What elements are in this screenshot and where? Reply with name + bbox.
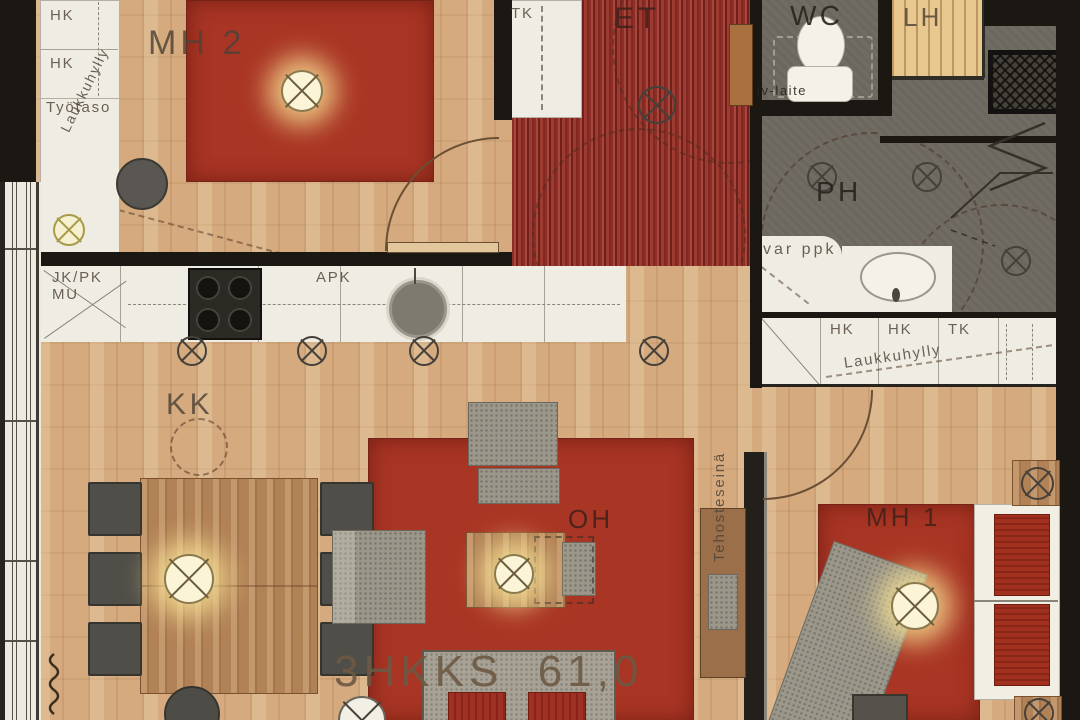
closet-label-tk: TK [948, 322, 971, 337]
dining-chair [320, 482, 374, 536]
window-mullion [5, 420, 36, 422]
wall-kitchen-north [18, 252, 512, 266]
counter-divider [120, 266, 121, 342]
ceiling-light-icon [53, 214, 85, 246]
floor-plan: MH 2 ET WC LH PH KK OH MH 1 TK HK HK Lau… [0, 0, 1080, 720]
window-inner-edge [36, 182, 39, 720]
bedroom-chair [852, 694, 908, 720]
ottoman [468, 402, 558, 466]
ceiling-light-icon [891, 582, 939, 630]
window-mullion [5, 640, 36, 642]
dining-chair [88, 622, 142, 676]
room-label-wc: WC [790, 2, 843, 30]
duvet [994, 514, 1050, 596]
radiator-icon [44, 652, 64, 720]
closet-dashed-mark [1032, 324, 1034, 380]
room-label-mh2: MH 2 [148, 26, 246, 60]
closet-label-hk: HK [50, 8, 74, 23]
window-mullion [5, 560, 36, 562]
dining-chair [88, 482, 142, 536]
wall-closet-south-line [762, 384, 1058, 387]
sofa-cushion [528, 692, 586, 720]
closet-label-hk: HK [888, 322, 912, 337]
ceiling-light-icon [912, 162, 942, 192]
closet-label-hk: HK [50, 56, 74, 71]
dishwasher-label: APK [316, 270, 351, 285]
bed-center-line [974, 600, 1058, 602]
bathroom-faucet [892, 288, 900, 302]
ceiling-light-icon [639, 336, 669, 366]
room-label-kk: KK [166, 390, 213, 420]
sideboard-object [708, 574, 738, 630]
sauna-bench-edge [892, 76, 984, 80]
wall-bathroom-west [750, 118, 762, 318]
furniture-dashed-outline [534, 536, 594, 604]
kitchen-sink-faucet [414, 268, 416, 284]
ottoman [478, 468, 560, 504]
room-label-et: ET [614, 4, 660, 34]
wall-corner-topleft [0, 0, 36, 182]
ceiling-light-icon [409, 336, 439, 366]
ceiling-light-icon [297, 336, 327, 366]
dining-chair [88, 552, 142, 606]
sofa-cushion [448, 692, 506, 720]
washer-reservation-label: var ppk [763, 242, 836, 258]
fridge-label: JK/PK [52, 270, 103, 285]
stove [188, 268, 262, 340]
accent-wall-label: Tehosteseinä [712, 450, 727, 562]
room-label-mh1: MH 1 [866, 504, 941, 530]
hall-closet-dashed [541, 6, 544, 110]
sauna-corner-wall [984, 0, 1056, 26]
ceiling-light-icon [638, 86, 676, 124]
ceiling-light-icon [177, 336, 207, 366]
closet-label-tk-hall: TK [511, 6, 534, 21]
worktop-stool [116, 158, 168, 210]
ceiling-light-icon [1001, 246, 1031, 276]
wall-closet-west [750, 318, 762, 388]
window-mullion [5, 248, 36, 250]
closet-dashed-mark [1006, 324, 1008, 380]
door-leaf [387, 242, 499, 253]
vent-unit-label: iv-laite [757, 84, 807, 97]
duvet [994, 604, 1050, 686]
pendant-light-icon [164, 554, 214, 604]
closet-divider [820, 318, 821, 386]
wall-wc-sauna [878, 0, 892, 104]
shower-corner [945, 118, 1057, 253]
armchair [332, 530, 426, 624]
closet-label-hk: HK [830, 322, 854, 337]
kitchen-sink [389, 280, 447, 338]
wall-wc-south [750, 100, 892, 116]
ceiling-light-icon [494, 554, 534, 594]
room-label-lh: LH [903, 4, 942, 30]
future-fixture-dashed-circle [170, 418, 228, 476]
room-label-ph: PH [816, 178, 862, 206]
wall-closet-north [762, 312, 1058, 318]
fridge-label2: MU [52, 287, 79, 302]
accent-wall [744, 452, 764, 720]
room-label-oh: OH [568, 506, 613, 532]
ceiling-light-icon [281, 70, 323, 112]
apartment-area-label: 3HKKS 61,0 [334, 650, 643, 694]
door-leaf [729, 24, 753, 106]
worktop-label: Työtaso [46, 100, 111, 115]
sauna-heater [988, 50, 1062, 114]
ceiling-light-icon [1021, 467, 1054, 500]
armchair-back [333, 531, 355, 623]
window-strip-west [0, 182, 41, 720]
ceiling-light-icon [1024, 698, 1054, 720]
wall-bedroom2-hall [494, 0, 512, 120]
